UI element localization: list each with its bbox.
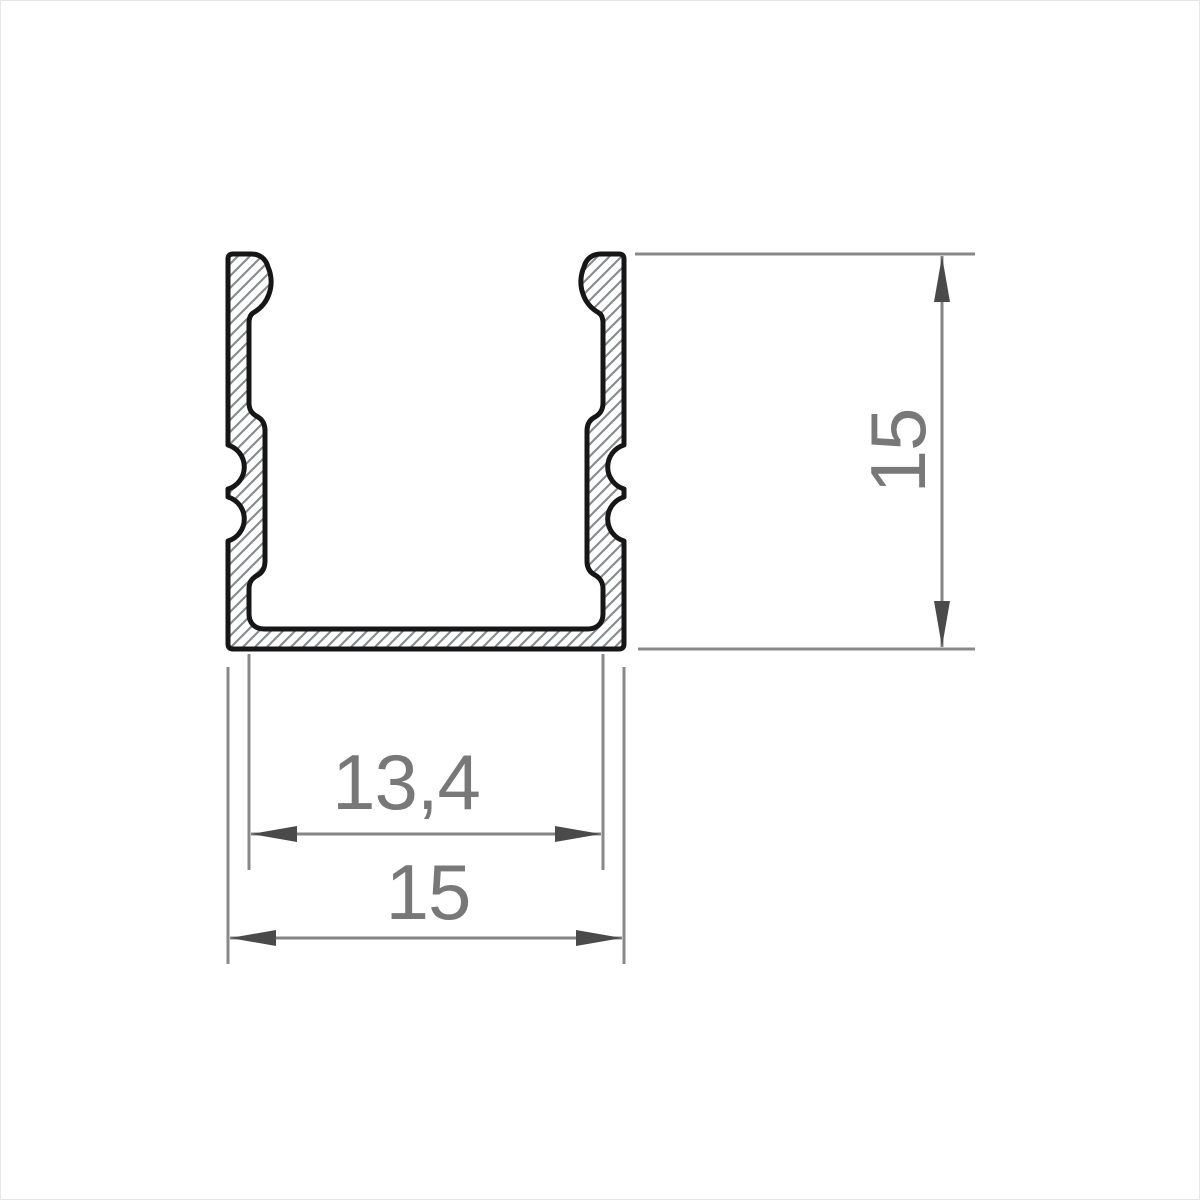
outer-width-arrow-right-icon <box>576 930 622 946</box>
profile-outline <box>228 254 624 649</box>
height-arrow-bottom-icon <box>934 601 950 647</box>
height-arrow-top-icon <box>934 256 950 302</box>
drawing-canvas: 13,4 15 15 <box>0 0 1200 1200</box>
inner-width-label: 13,4 <box>332 738 480 826</box>
inner-width-arrow-left-icon <box>251 826 297 842</box>
outer-width-arrow-left-icon <box>230 930 276 946</box>
dimension-height: 15 <box>635 254 975 649</box>
outer-width-label: 15 <box>386 848 471 936</box>
inner-width-arrow-right-icon <box>555 826 601 842</box>
dimension-inner-width: 13,4 <box>249 654 603 870</box>
height-label: 15 <box>854 409 942 494</box>
technical-drawing: 13,4 15 15 <box>1 1 1200 1200</box>
